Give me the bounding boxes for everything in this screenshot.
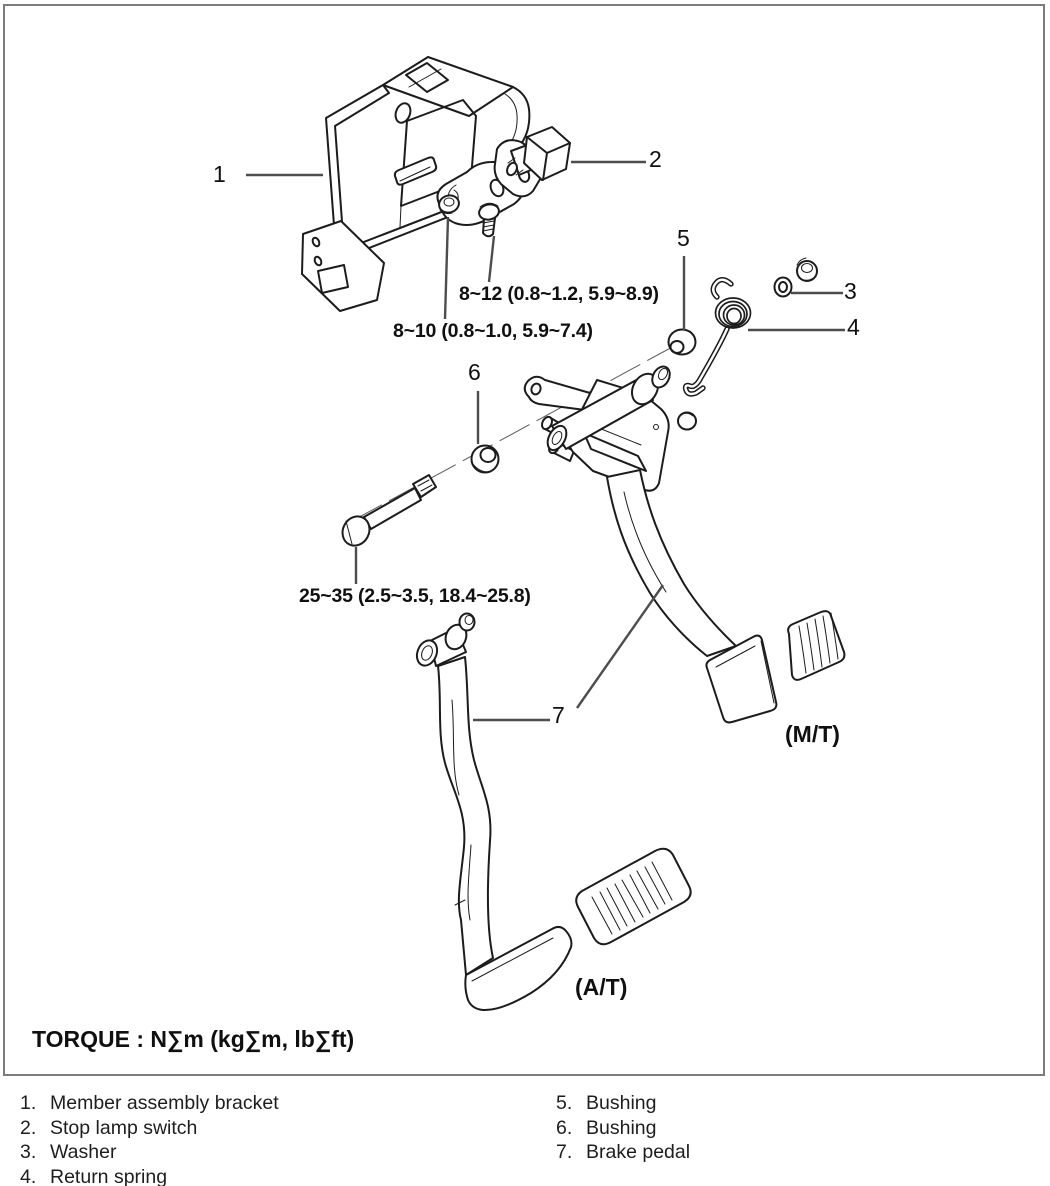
parts-list-left-column: 1. Member assembly bracket 2. Stop lamp … <box>20 1092 279 1186</box>
mt-variant-label: (M/T) <box>785 721 840 748</box>
brake-pedal-at-drawing <box>413 614 571 1011</box>
part-name: Bushing <box>586 1092 656 1117</box>
part-number: 6. <box>556 1117 586 1142</box>
pedal-pad-at-drawing <box>576 849 690 945</box>
at-variant-label: (A/T) <box>575 974 627 1001</box>
bushing-5-drawing <box>669 330 696 355</box>
part-label-4: 4 <box>847 316 860 339</box>
part-name: Brake pedal <box>586 1141 690 1166</box>
part-label-7: 7 <box>552 704 565 727</box>
part-label-3: 3 <box>844 280 857 303</box>
pivot-bolt-drawing <box>337 475 436 550</box>
pedal-pivot-assembly-drawing <box>525 364 696 491</box>
parts-list-item: 5. Bushing <box>556 1092 690 1117</box>
part-number: 4. <box>20 1166 50 1186</box>
part-name: Washer <box>50 1141 116 1166</box>
part-number: 1. <box>20 1092 50 1117</box>
parts-list-item: 6. Bushing <box>556 1117 690 1142</box>
washer-drawing <box>775 258 818 297</box>
part-name: Bushing <box>586 1117 656 1142</box>
parts-list-item: 2. Stop lamp switch <box>20 1117 279 1142</box>
torque-callout-switch-bolt: 8~12 (0.8~1.2, 5.9~8.9) <box>459 284 659 305</box>
part-label-5: 5 <box>677 227 690 250</box>
bushing-6-drawing <box>472 446 499 473</box>
parts-list-right-column: 5. Bushing 6. Bushing 7. Brake pedal <box>556 1092 690 1166</box>
member-assembly-bracket-drawing <box>302 57 544 311</box>
exploded-parts-diagram-page: 1 2 3 4 5 6 7 8~12 (0.8~1.2, 5.9~8.9) 8~… <box>0 0 1050 1186</box>
pedal-pad-mt-drawing <box>788 611 844 680</box>
part-number: 2. <box>20 1117 50 1142</box>
torque-callout-switch-nut: 8~10 (0.8~1.0, 5.9~7.4) <box>393 321 593 342</box>
brake-pedal-mt-drawing <box>607 470 776 722</box>
parts-list-item: 7. Brake pedal <box>556 1141 690 1166</box>
parts-list-item: 3. Washer <box>20 1141 279 1166</box>
part-name: Member assembly bracket <box>50 1092 279 1117</box>
part-label-6: 6 <box>468 361 481 384</box>
parts-list-item: 1. Member assembly bracket <box>20 1092 279 1117</box>
part-name: Return spring <box>50 1166 167 1186</box>
parts-list-item: 4. Return spring <box>20 1166 279 1186</box>
part-label-1: 1 <box>213 163 226 186</box>
part-number: 5. <box>556 1092 586 1117</box>
part-name: Stop lamp switch <box>50 1117 197 1142</box>
torque-units-note: TORQUE : N∑m (kg∑m, lb∑ft) <box>32 1026 354 1053</box>
part-number: 7. <box>556 1141 586 1166</box>
part-label-2: 2 <box>649 148 662 171</box>
torque-callout-pivot-bolt: 25~35 (2.5~3.5, 18.4~25.8) <box>299 586 531 607</box>
part-number: 3. <box>20 1141 50 1166</box>
